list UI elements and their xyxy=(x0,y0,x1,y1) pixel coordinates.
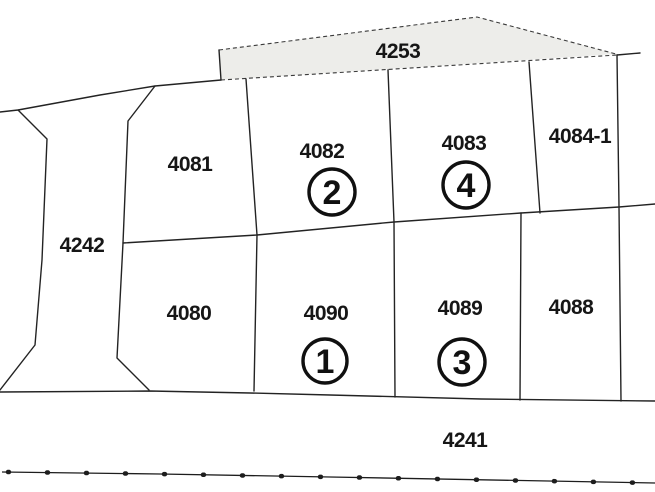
parcel-label-4080: 4080 xyxy=(167,302,212,325)
parcel-4242-east-boundary xyxy=(117,86,155,390)
circled-digit-4: 4 xyxy=(457,167,476,205)
top-right-stub-line xyxy=(617,53,640,55)
divider-4080-4090 xyxy=(254,235,257,391)
divider-4082-4083 xyxy=(388,70,394,222)
parcel-label-4241: 4241 xyxy=(443,429,489,452)
divider-4089-4088 xyxy=(520,213,521,400)
parcel-label-4083: 4083 xyxy=(442,132,487,155)
upper-road-boundary xyxy=(0,80,221,112)
circled-digit-3: 3 xyxy=(453,344,472,382)
row-separator-boundary xyxy=(123,204,655,243)
parcel-label-4089: 4089 xyxy=(438,297,483,320)
cadastral-map-svg: 4253 4081 4082 4083 4084-1 4242 4080 409… xyxy=(0,0,655,492)
parcel-4242-west-boundary xyxy=(0,110,47,390)
circled-digit-1: 1 xyxy=(316,343,335,381)
circled-number-3: 3 xyxy=(439,339,485,385)
cadastral-map-page: 4253 4081 4082 4083 4084-1 4242 4080 409… xyxy=(0,0,655,492)
parcel-label-4084-1: 4084-1 xyxy=(549,125,612,148)
parcel-label-4081: 4081 xyxy=(168,153,214,176)
circled-number-2: 2 xyxy=(309,169,355,215)
parcel-label-4088: 4088 xyxy=(549,296,595,319)
east-boundary-4084-1-4088 xyxy=(617,55,621,401)
parcel-label-4090: 4090 xyxy=(304,302,349,325)
circled-digit-2: 2 xyxy=(323,174,342,212)
circled-number-1: 1 xyxy=(303,339,347,383)
divider-4081-4082 xyxy=(246,79,257,235)
parcel-label-4253: 4253 xyxy=(376,40,421,63)
divider-4090-4089 xyxy=(394,222,395,397)
parcel-label-4242: 4242 xyxy=(60,234,105,257)
divider-4083-4084-1 xyxy=(529,62,540,213)
parcel-label-4082: 4082 xyxy=(300,140,345,163)
lower-row-bottom-boundary xyxy=(0,391,655,401)
circled-number-4: 4 xyxy=(443,162,489,208)
